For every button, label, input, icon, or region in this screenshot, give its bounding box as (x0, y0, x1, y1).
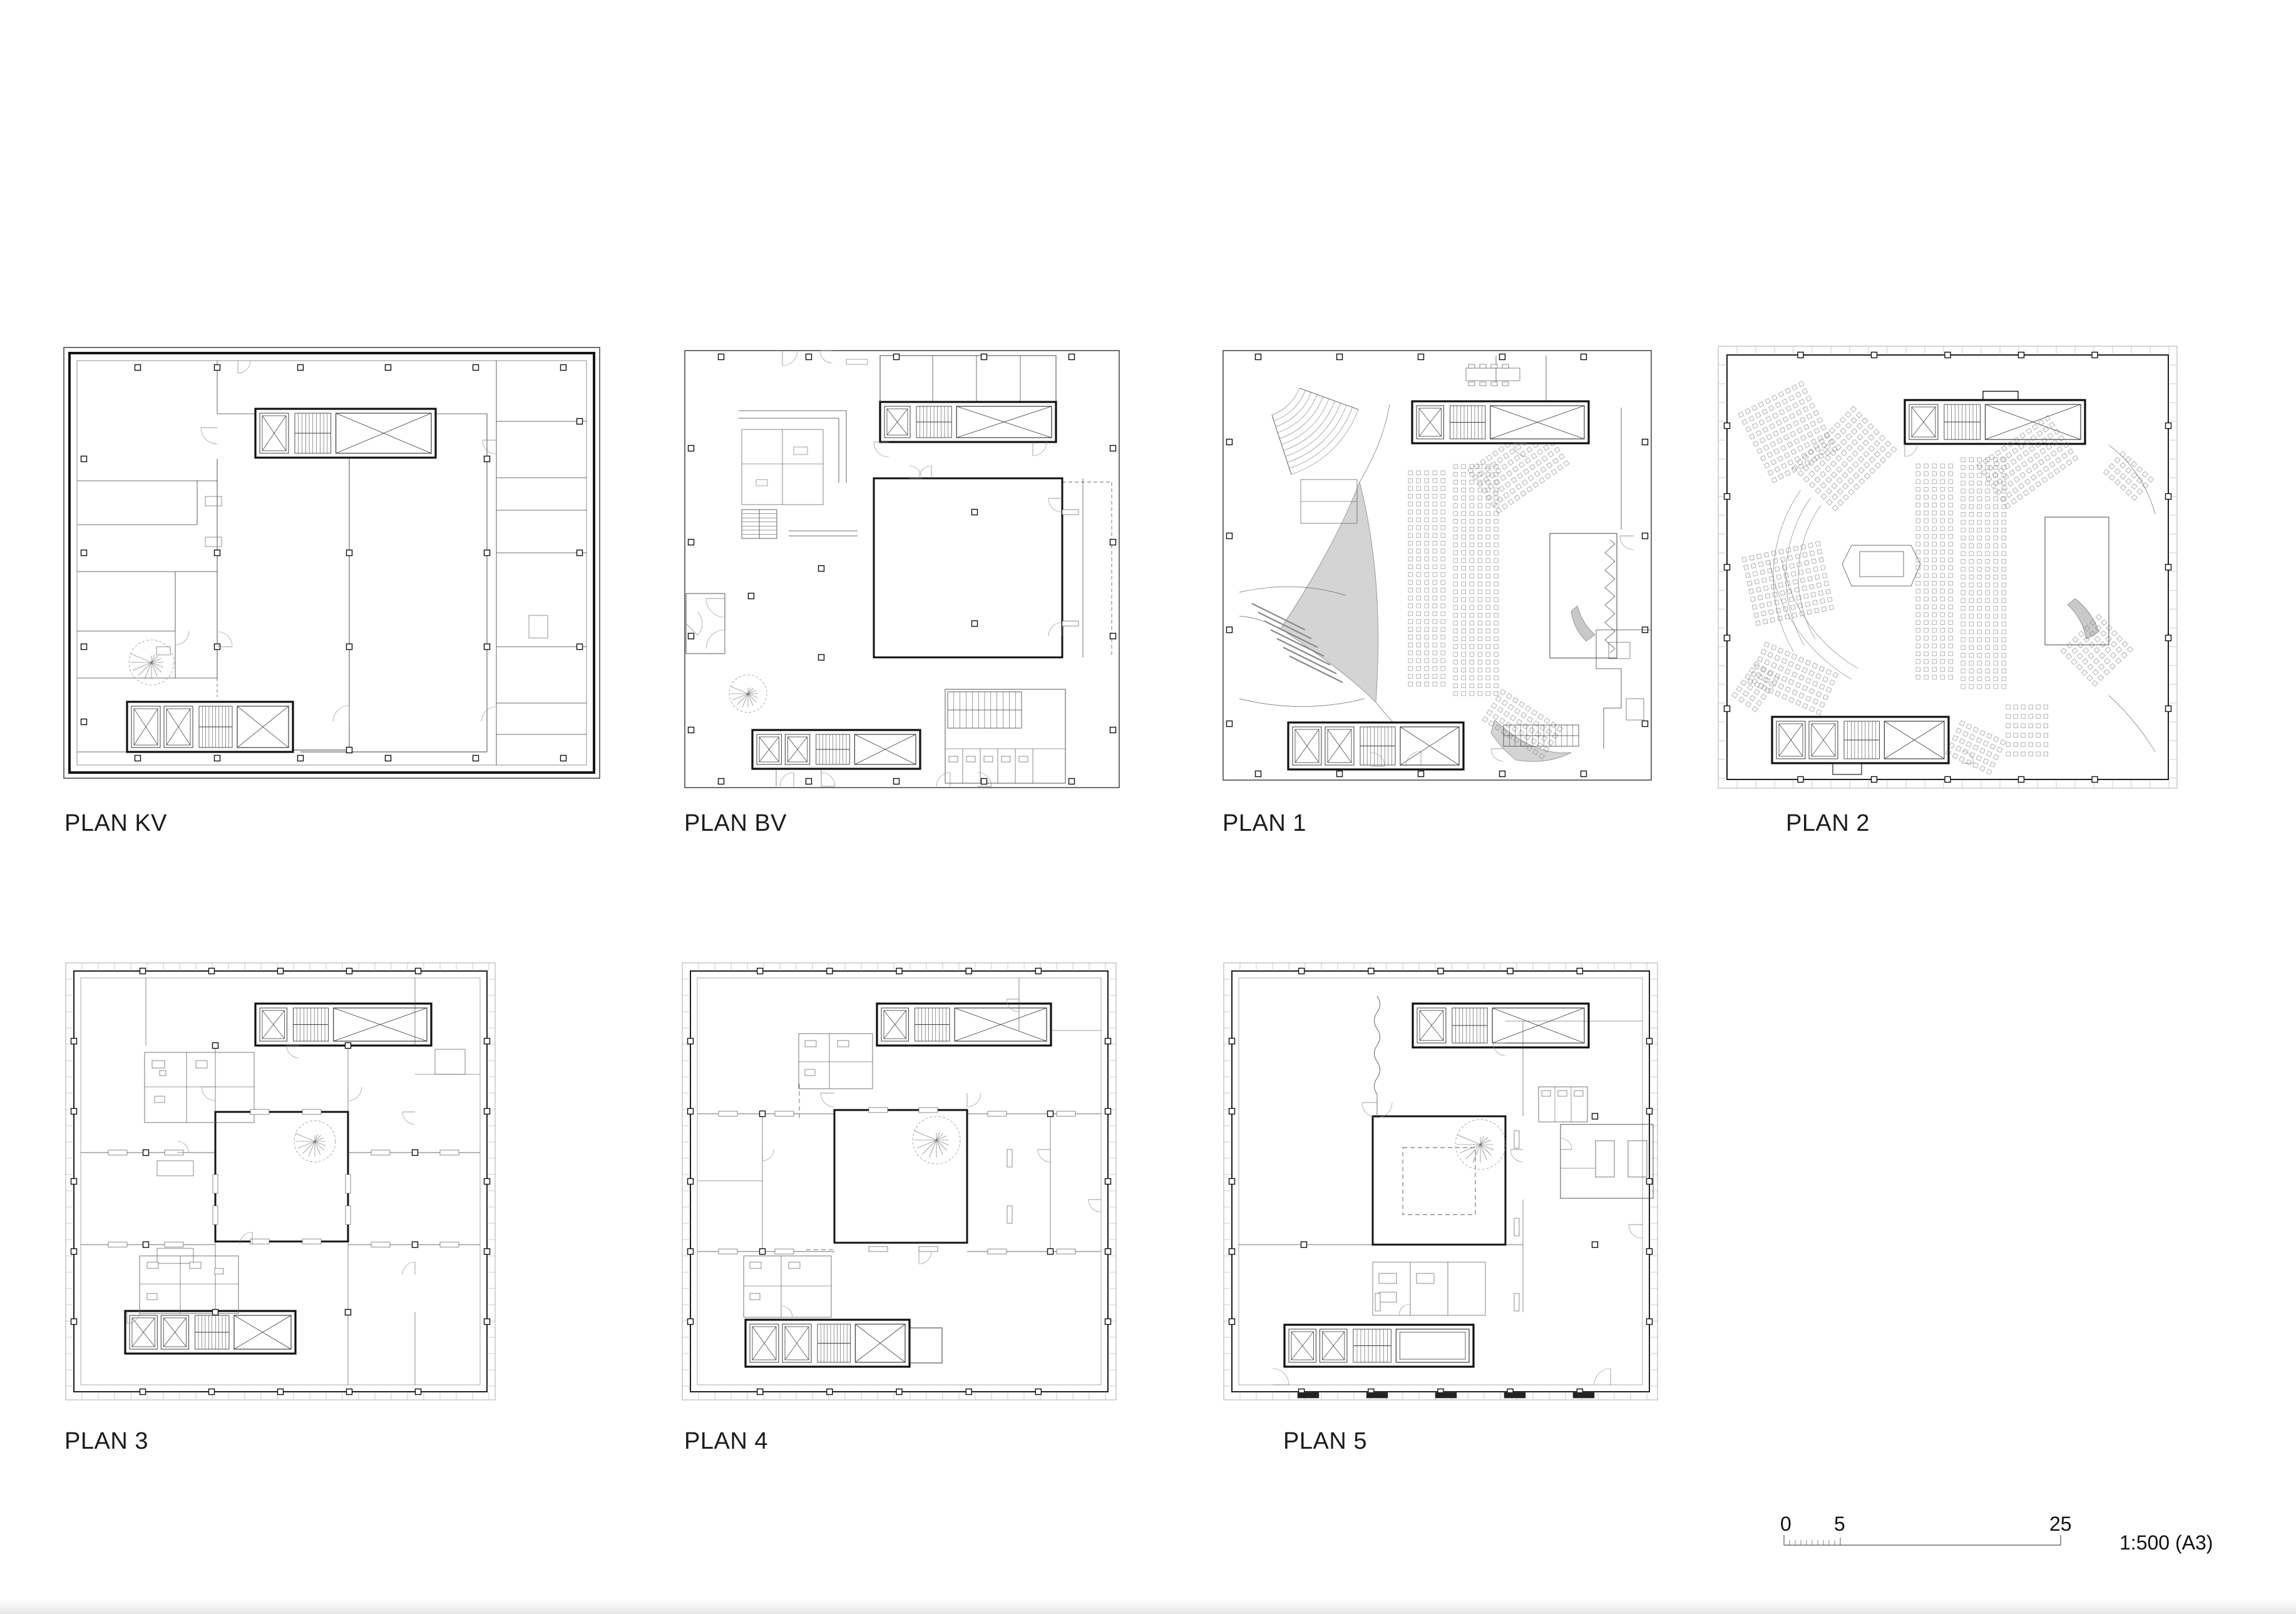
floor-plan-2-drawing (1717, 345, 2178, 789)
floor-plan-3-drawing (64, 962, 496, 1401)
plan-label-1: PLAN 1 (1222, 810, 1306, 837)
floor-plan-kv: PLAN KV (63, 346, 601, 779)
floor-plan-5: PLAN 5 (1222, 962, 1659, 1401)
floor-plan-4: PLAN 4 (681, 962, 1117, 1401)
floor-plan-1-drawing (1221, 348, 1654, 783)
floor-plan-3: PLAN 3 (64, 962, 496, 1401)
plan-label-kv: PLAN KV (64, 810, 167, 837)
floor-plan-5-drawing (1222, 962, 1659, 1401)
floor-plan-1: PLAN 1 (1221, 348, 1654, 783)
floor-plan-4-drawing (681, 962, 1117, 1401)
scale-bar-ruler (1776, 1534, 2077, 1553)
floor-plan-2: PLAN 2 (1717, 345, 2178, 789)
plan-label-2: PLAN 2 (1786, 810, 1870, 837)
plan-label-5: PLAN 5 (1283, 1428, 1367, 1455)
floor-plan-bv: PLAN BV (682, 348, 1122, 790)
viewer-bottom-shadow (0, 1599, 2296, 1614)
floor-plan-kv-drawing (63, 346, 601, 779)
scale-twentyfive-label: 25 (2049, 1513, 2072, 1536)
drawing-sheet: PLAN KV PLAN BV PLAN 1 PLAN 2 PLAN 3 PLA… (0, 0, 2296, 1614)
plan-label-bv: PLAN BV (684, 810, 787, 837)
scale-five-label: 5 (1834, 1513, 1845, 1536)
plan-label-4: PLAN 4 (684, 1428, 768, 1455)
scale-bar: 0 5 25 (1776, 1513, 2077, 1556)
floor-plan-bv-drawing (682, 348, 1122, 790)
scale-zero-label: 0 (1780, 1513, 1791, 1536)
plan-label-3: PLAN 3 (64, 1428, 148, 1455)
scale-ratio-label: 1:500 (A3) (2119, 1531, 2213, 1555)
